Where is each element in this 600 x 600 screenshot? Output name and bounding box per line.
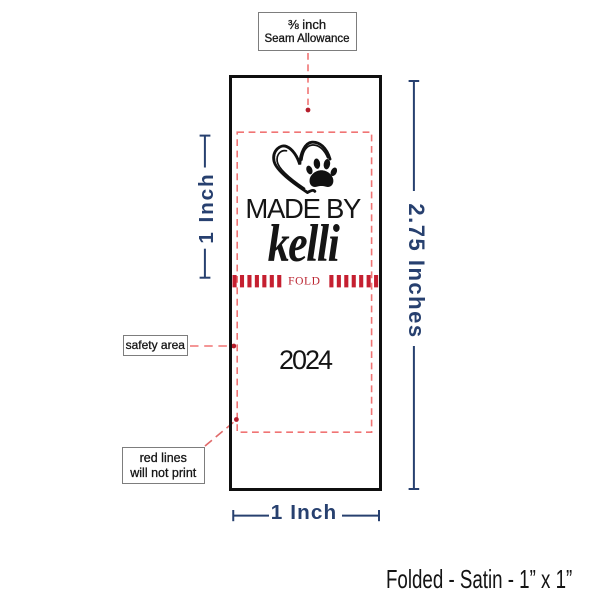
svg-text:FOLD: FOLD xyxy=(288,275,320,287)
